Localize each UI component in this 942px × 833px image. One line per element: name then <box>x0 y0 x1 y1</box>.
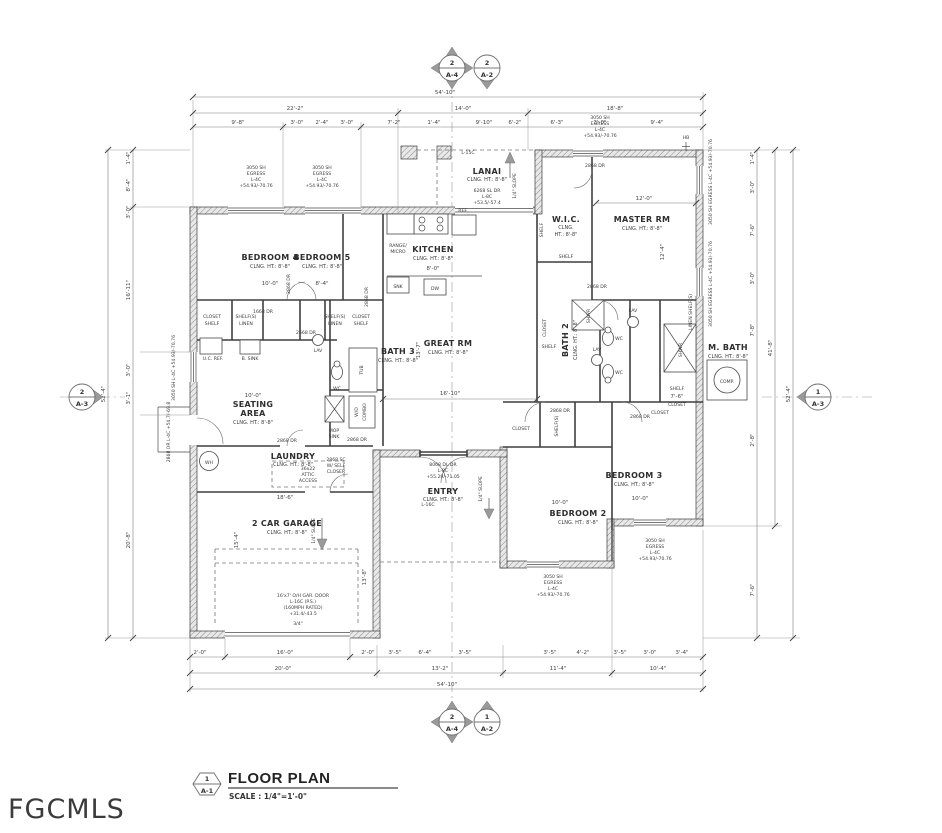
svg-text:13'-2": 13'-2" <box>432 666 449 672</box>
svg-text:LINEN: LINEN <box>239 321 253 327</box>
room-bath2: BATH 2 <box>561 323 570 357</box>
title-block: 1 A-1 FLOOR PLAN SCALE : 1/4"=1'-0" <box>193 770 398 801</box>
self-closer-note: 2868 SC <box>326 457 345 463</box>
svg-text:EGRESS: EGRESS <box>646 544 664 550</box>
comp-label: COMP. <box>720 379 734 385</box>
dim-right-overall: 52'-4" <box>786 385 792 402</box>
svg-text:CLNG. HT.: 8'-8": CLNG. HT.: 8'-8" <box>558 520 598 526</box>
l16c-note: L-16C <box>421 502 434 508</box>
svg-text:MICRO: MICRO <box>390 249 406 255</box>
bsink-label: B. SINK <box>242 356 260 362</box>
svg-text:CLNG. HT.: 8'-8": CLNG. HT.: 8'-8" <box>708 354 748 360</box>
svg-text:9'-4": 9'-4" <box>650 120 664 126</box>
svg-text:2868 DR: 2868 DR <box>630 414 651 420</box>
svg-text:2: 2 <box>485 59 490 67</box>
svg-text:1: 1 <box>816 388 821 396</box>
svg-text:10'-0": 10'-0" <box>262 281 279 287</box>
svg-text:3'-5": 3'-5" <box>613 650 627 656</box>
svg-text:+31.4/-43.5: +31.4/-43.5 <box>289 611 317 617</box>
svg-text:18'-6": 18'-6" <box>277 495 294 501</box>
svg-text:AREA: AREA <box>240 409 266 418</box>
svg-text:7'-8": 7'-8" <box>750 323 756 337</box>
svg-text:SHELF: SHELF <box>559 254 574 260</box>
svg-text:3'-4": 3'-4" <box>675 650 689 656</box>
svg-text:2868 DR: 2868 DR <box>347 437 368 443</box>
svg-text:11'-4": 11'-4" <box>550 666 567 672</box>
svg-text:8'-4": 8'-4" <box>126 178 132 192</box>
svg-text:(160MPH RATED): (160MPH RATED) <box>283 605 322 611</box>
slope-note-entry: 1/4" SLOPE <box>478 476 484 502</box>
lav-label: LAV <box>314 348 324 354</box>
window-note-right-lower: 3050 SH EGRESS L-4C +54.93/-70.76 <box>708 241 714 327</box>
svg-text:+54.93/-70.76: +54.93/-70.76 <box>583 133 616 139</box>
svg-text:20'-8": 20'-8" <box>126 531 132 548</box>
svg-text:2: 2 <box>450 59 455 67</box>
wc-label: WC <box>333 386 341 392</box>
svg-text:ACCESS: ACCESS <box>299 478 317 484</box>
svg-text:SINK: SINK <box>329 434 341 440</box>
svg-text:CLNG. HT.: 8'-8": CLNG. HT.: 8'-8" <box>413 256 453 262</box>
svg-text:SHELF: SHELF <box>542 344 557 350</box>
svg-text:+54.93/-70.76: +54.93/-70.76 <box>536 592 569 598</box>
room-great: GREAT RM <box>424 339 473 348</box>
svg-text:3'-0": 3'-0" <box>126 205 132 219</box>
floor-plan-drawing: BEDROOM 4 CLNG. HT.: 8'-8" BEDROOM 5 CLN… <box>0 0 942 833</box>
section-marker-top-a2: 2 A-2 <box>474 55 500 89</box>
dim-left-overall: 52'-4" <box>101 385 107 402</box>
svg-text:7'-6": 7'-6" <box>750 223 756 237</box>
svg-text:CLNG. HT.: 8'-8": CLNG. HT.: 8'-8" <box>573 320 579 360</box>
svg-text:CLOSET: CLOSET <box>203 314 221 320</box>
mop-sink-label: MOP <box>329 428 340 434</box>
note-labels: 3050 SH EGRESS L-4C +54.93/-70.76 3050 S… <box>166 115 714 627</box>
window-note-bedroom4: 3050 SH <box>246 165 266 171</box>
svg-text:3'-0": 3'-0" <box>593 120 607 126</box>
svg-text:2'-0": 2'-0" <box>193 650 207 656</box>
svg-text:3'-0": 3'-0" <box>750 180 756 194</box>
sink-label: SNK <box>393 284 403 290</box>
svg-text:CLNG. HT.: 8'-8": CLNG. HT.: 8'-8" <box>267 530 307 536</box>
svg-text:3'-0": 3'-0" <box>290 120 304 126</box>
svg-text:2868 DR: 2868 DR <box>550 408 571 414</box>
svg-text:+54.93/-70.76: +54.93/-70.76 <box>305 183 338 189</box>
svg-text:13'-7": 13'-7" <box>416 341 422 358</box>
window-note-bedroom2: 3050 SH <box>543 574 563 580</box>
room-master: MASTER RM <box>614 215 671 224</box>
svg-text:SHELF(S): SHELF(S) <box>554 415 560 436</box>
svg-text:A-3: A-3 <box>812 400 824 408</box>
svg-text:9'-10": 9'-10" <box>476 120 493 126</box>
svg-text:16'-0": 16'-0" <box>277 650 294 656</box>
svg-text:2868 DR: 2868 DR <box>364 286 370 307</box>
dim-bottom-overall: 54'-10" <box>437 682 458 688</box>
svg-text:1'-4": 1'-4" <box>427 120 441 126</box>
svg-text:8'-0": 8'-0" <box>426 266 440 272</box>
svg-text:3'-5": 3'-5" <box>543 650 557 656</box>
room-lanai: LANAI <box>473 167 502 176</box>
room-laundry: LAUNDRY <box>271 452 316 461</box>
svg-text:3'-0": 3'-0" <box>126 363 132 377</box>
svg-text:+55.29/-71.05: +55.29/-71.05 <box>426 474 459 480</box>
svg-text:3'-0": 3'-0" <box>340 120 354 126</box>
svg-text:13'-8": 13'-8" <box>362 568 368 585</box>
svg-text:A-2: A-2 <box>481 725 493 733</box>
section-marker-bottom-a2: 1 A-2 <box>474 701 500 735</box>
dim-right-sub: 41'-8" <box>768 339 774 356</box>
svg-text:CLNG. HT.: 8'-8": CLNG. HT.: 8'-8" <box>614 482 654 488</box>
svg-text:4'-2": 4'-2" <box>576 650 590 656</box>
room-seating: SEATING <box>233 400 274 409</box>
svg-text:SHELF: SHELF <box>354 321 369 327</box>
section-marker-left-a3: 2 A-3 <box>69 384 103 410</box>
svg-text:10'-4": 10'-4" <box>650 666 667 672</box>
svg-text:14'-0": 14'-0" <box>455 106 472 112</box>
svg-text:SHELF(S): SHELF(S) <box>325 314 346 320</box>
room-wic: W.I.C. <box>552 215 580 224</box>
svg-text:A-2: A-2 <box>481 71 493 79</box>
svg-text:CLNG. HT.: 8'-8": CLNG. HT.: 8'-8" <box>378 358 418 364</box>
svg-text:2'-4": 2'-4" <box>315 120 329 126</box>
watermark: FGCMLS <box>8 794 125 825</box>
svg-text:20'-0": 20'-0" <box>275 666 292 672</box>
window-note-bedroom3: 3050 SH <box>645 538 665 544</box>
svg-text:L-8C: L-8C <box>438 468 448 474</box>
room-bedroom2: BEDROOM 2 <box>550 509 607 518</box>
room-mbath: M. BATH <box>708 343 748 352</box>
svg-text:16'-11": 16'-11" <box>126 279 132 300</box>
svg-text:2868 DR: 2868 DR <box>277 438 298 444</box>
tub-label: TUB <box>359 365 365 375</box>
room-entry: ENTRY <box>428 487 459 496</box>
svg-text:A-1: A-1 <box>201 787 214 795</box>
svg-text:L-8C: L-8C <box>482 194 492 200</box>
linen-shelfs-label: LINEN SHELF(S) <box>688 294 694 330</box>
svg-text:A-3: A-3 <box>76 400 88 408</box>
svg-text:WC: WC <box>615 370 623 376</box>
svg-text:L-4C: L-4C <box>650 550 660 556</box>
svg-text:10'-0": 10'-0" <box>552 500 569 506</box>
dw-label: DW <box>431 286 440 292</box>
svg-text:15'-4": 15'-4" <box>234 531 240 548</box>
section-marker-bottom-a4: 2 A-4 <box>431 701 473 743</box>
svg-text:6'-4": 6'-4" <box>418 650 432 656</box>
room-bedroom4: BEDROOM 4 <box>242 253 299 262</box>
svg-text:10'-0": 10'-0" <box>632 496 649 502</box>
section-marker-right-a3: 1 A-3 <box>797 384 831 410</box>
svg-text:2'-0": 2'-0" <box>361 650 375 656</box>
svg-text:3'-0": 3'-0" <box>643 650 657 656</box>
svg-text:16'-10": 16'-10" <box>440 391 461 397</box>
window-note-right-upper: 3050 SH EGRESS L-4C +54.93/-70.76 <box>708 139 714 225</box>
svg-text:3'-5": 3'-5" <box>458 650 472 656</box>
svg-text:SHWR: SHWR <box>678 342 684 357</box>
sheet-title: FLOOR PLAN <box>228 770 331 787</box>
entry-door-note: 8068 DL DR <box>429 462 457 468</box>
svg-text:EGRESS: EGRESS <box>247 171 265 177</box>
section-marker-top-a4: 2 A-4 <box>431 47 473 89</box>
svg-text:8'-4": 8'-4" <box>315 281 329 287</box>
svg-text:7'-6": 7'-6" <box>750 583 756 597</box>
hose-bib-label: HB <box>683 135 690 141</box>
svg-text:2868 DR: 2868 DR <box>286 273 292 294</box>
svg-text:+54.93/-70.76: +54.93/-70.76 <box>239 183 272 189</box>
ucref-label: U.C. REF. <box>203 356 223 362</box>
svg-text:12'-4": 12'-4" <box>660 243 666 260</box>
svg-text:EGRESS: EGRESS <box>544 580 562 586</box>
svg-text:CLNG. HT.: 8'-8": CLNG. HT.: 8'-8" <box>250 264 290 270</box>
svg-text:COMBO: COMBO <box>362 403 368 421</box>
svg-text:L-4C: L-4C <box>317 177 327 183</box>
svg-text:3/4": 3/4" <box>293 621 303 627</box>
floor-plan-sheet: BEDROOM 4 CLNG. HT.: 8'-8" BEDROOM 5 CLN… <box>0 0 942 833</box>
slope-note-lanai: 1/4" SLOPE <box>512 173 518 199</box>
svg-text:10'-0": 10'-0" <box>245 393 262 399</box>
svg-text:2668 DR: 2668 DR <box>296 330 317 336</box>
svg-text:9'-8": 9'-8" <box>231 120 245 126</box>
svg-text:1: 1 <box>205 775 210 783</box>
svg-text:CLOSET: CLOSET <box>651 410 669 416</box>
window-note-left: 3050 SH L-4C +54.93/-70.76 <box>171 335 177 401</box>
svg-text:3'-1": 3'-1" <box>126 391 132 405</box>
svg-text:2868 DR: 2868 DR <box>587 284 608 290</box>
svg-text:7'-2": 7'-2" <box>387 120 401 126</box>
svg-text:CLNG.: CLNG. <box>558 225 574 231</box>
svg-text:CLOSET: CLOSET <box>542 319 548 337</box>
room-bedroom3: BEDROOM 3 <box>606 471 663 480</box>
svg-text:ATTIC: ATTIC <box>302 472 315 478</box>
dimension-texts: 54'-10" 22'-2" 14'-0" 18'-8" 9'-8" 3'-0"… <box>101 90 792 688</box>
svg-text:L-4C: L-4C <box>548 586 558 592</box>
svg-text:12'-0": 12'-0" <box>636 196 653 202</box>
svg-text:SHELF: SHELF <box>670 386 685 392</box>
svg-text:1: 1 <box>485 713 490 721</box>
svg-text:3'-0": 3'-0" <box>750 271 756 285</box>
svg-text:LAV: LAV <box>593 347 603 353</box>
svg-text:EGRESS: EGRESS <box>313 171 331 177</box>
wd-combo-label: W/D <box>354 407 360 417</box>
room-bath3: BATH 3 <box>381 347 415 356</box>
attic-label: 36x22 <box>301 466 315 472</box>
svg-text:CLOSET: CLOSET <box>352 314 370 320</box>
svg-text:SHELF: SHELF <box>205 321 220 327</box>
svg-text:CLOSER: CLOSER <box>327 469 346 475</box>
svg-text:2: 2 <box>450 713 455 721</box>
svg-text:+54.93/-70.76: +54.93/-70.76 <box>638 556 671 562</box>
svg-text:CLNG. HT.: 8'-8": CLNG. HT.: 8'-8" <box>302 264 342 270</box>
svg-text:6268 SL DR: 6268 SL DR <box>474 188 502 194</box>
svg-text:18'-8": 18'-8" <box>607 106 624 112</box>
ref-label: REF. <box>458 208 467 214</box>
svg-text:L-4C: L-4C <box>251 177 261 183</box>
svg-text:A-4: A-4 <box>446 725 459 733</box>
svg-text:1668 DR: 1668 DR <box>253 309 274 315</box>
sheet-scale: SCALE : 1/4"=1'-0" <box>229 792 307 801</box>
svg-text:CLNG. HT.: 8'-8": CLNG. HT.: 8'-8" <box>622 226 662 232</box>
svg-text:1'-4": 1'-4" <box>750 151 756 165</box>
svg-text:SHELF: SHELF <box>539 222 545 237</box>
svg-text:LAV: LAV <box>629 308 639 314</box>
svg-text:WC: WC <box>615 336 623 342</box>
svg-text:2868 DR: 2868 DR <box>585 163 606 169</box>
l15c-note: L-15C <box>461 150 474 156</box>
shwr-label: SHWR <box>586 308 592 323</box>
garage-door-note: 16'x7' O/H GAR. DOOR <box>277 593 330 599</box>
svg-text:6'-2": 6'-2" <box>508 120 522 126</box>
svg-text:CLNG. HT.: 8'-8": CLNG. HT.: 8'-8" <box>233 420 273 426</box>
svg-text:A-4: A-4 <box>446 71 459 79</box>
room-kitchen: KITCHEN <box>412 245 453 254</box>
svg-text:+53.5/-57.4: +53.5/-57.4 <box>473 200 501 206</box>
svg-text:HT.: 8'-8": HT.: 8'-8" <box>555 232 578 238</box>
svg-text:7'-6": 7'-6" <box>670 394 684 400</box>
dim-top-overall: 54'-10" <box>435 90 456 96</box>
window-note-bedroom5: 3050 SH <box>312 165 332 171</box>
svg-text:CLOSET: CLOSET <box>512 426 530 432</box>
svg-text:6'-3": 6'-3" <box>550 120 564 126</box>
svg-text:1'-4": 1'-4" <box>126 151 132 165</box>
slope-note-garage: 1/4" SLOPE <box>311 518 317 544</box>
svg-text:CLOSET: CLOSET <box>668 402 686 408</box>
svg-text:2: 2 <box>80 388 85 396</box>
svg-text:CLNG. HT.: 8'-8": CLNG. HT.: 8'-8" <box>467 177 507 183</box>
wh-label: WH <box>205 460 213 466</box>
svg-text:W/ SELF: W/ SELF <box>327 463 346 469</box>
svg-text:L-4C: L-4C <box>595 127 605 133</box>
room-bedroom5: BEDROOM 5 <box>294 253 351 262</box>
svg-text:22'-2": 22'-2" <box>287 106 304 112</box>
svg-text:3'-5": 3'-5" <box>388 650 402 656</box>
front-door-note: 2868 DR L-4C +54.7/-69.8 <box>166 402 172 463</box>
svg-text:L-16C (P.S.): L-16C (P.S.) <box>290 599 316 605</box>
range-label: RANGE/ <box>389 243 407 249</box>
svg-text:LINEN: LINEN <box>328 321 342 327</box>
svg-text:2'-8": 2'-8" <box>750 433 756 447</box>
svg-text:CLNG. HT.: 8'-8": CLNG. HT.: 8'-8" <box>428 350 468 356</box>
